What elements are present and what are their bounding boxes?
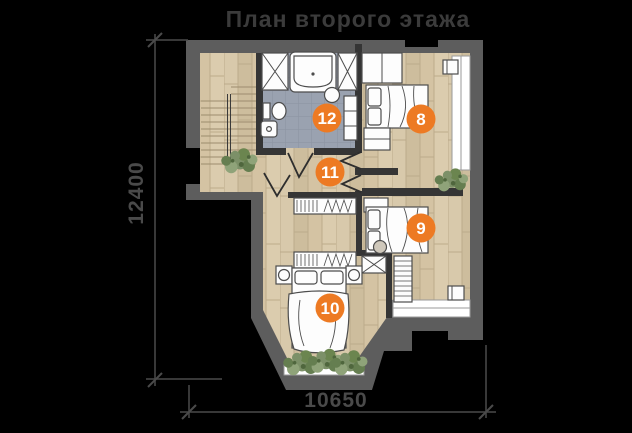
vase: [374, 241, 387, 254]
pillow: [321, 271, 343, 284]
badge-room-8: 8: [407, 105, 436, 134]
pillow: [368, 210, 380, 229]
badge-room-12-label: 12: [318, 109, 337, 128]
floor-plan-canvas: План второго этажа: [0, 0, 632, 433]
hand-basin: [261, 121, 277, 137]
wall-unit-bedroom8: [443, 60, 458, 74]
sink-round: [325, 88, 340, 103]
badge-room-10-label: 10: [321, 299, 340, 318]
dimension-left-label: 12400: [125, 161, 148, 224]
pillow: [368, 108, 381, 125]
toilet: [272, 103, 286, 120]
badge-room-9-label: 9: [416, 219, 425, 238]
box-bedroom9: [448, 286, 464, 300]
dimension-bottom-label: 10650: [304, 389, 367, 412]
floor-plan-page: План второго этажа: [0, 0, 632, 433]
badge-room-12: 12: [313, 104, 342, 133]
badge-room-8-label: 8: [416, 110, 425, 129]
closet-rail-top: [294, 198, 356, 214]
lamp-left: [279, 270, 290, 281]
toilet-tank: [263, 103, 270, 119]
lamp-right: [349, 270, 360, 281]
bath-shelf: [344, 96, 357, 140]
badge-room-11: 11: [316, 158, 345, 187]
page-title: План второго этажа: [226, 6, 471, 32]
badge-room-10: 10: [316, 294, 345, 323]
pillow: [295, 271, 317, 284]
wardrobe-bedroom9: [394, 256, 412, 302]
bathtub: [290, 52, 336, 92]
badge-room-9: 9: [407, 214, 436, 243]
pillow: [368, 88, 381, 106]
badge-room-11-label: 11: [321, 163, 339, 182]
